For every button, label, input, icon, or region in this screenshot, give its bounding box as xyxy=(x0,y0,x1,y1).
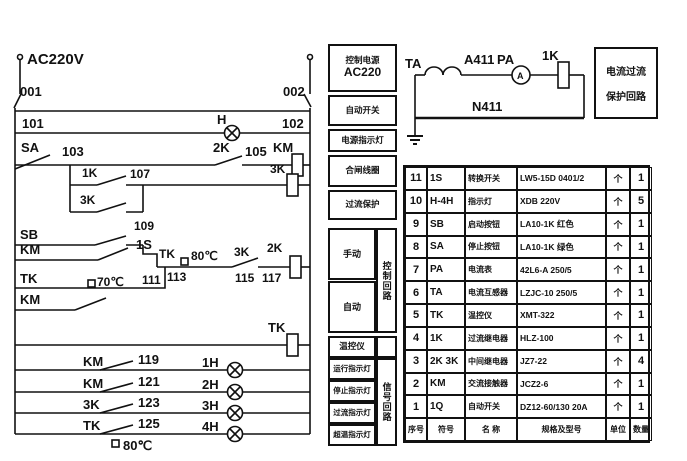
table-cell: 1 xyxy=(630,373,652,396)
protection-note-box: 电流过流 保护回路 xyxy=(595,48,657,118)
power-lamp-rung xyxy=(15,126,310,141)
ta-label: TA xyxy=(405,56,422,71)
contact-3k2-label: 3K xyxy=(234,245,250,259)
table-cell: DZ12-60/130 20A xyxy=(517,395,606,418)
table-cell: 5 xyxy=(405,304,427,327)
func-signal-loop: 信号回路 xyxy=(376,358,397,446)
k2-coil-symbol xyxy=(290,256,301,278)
temp-70-label: 70℃ xyxy=(97,275,124,289)
table-cell: 1 xyxy=(630,327,652,350)
schematic-page: AC220V 001 002 101 H 102 SA xyxy=(0,0,687,461)
k3-coil-label: 3K xyxy=(270,162,286,176)
contact-1k-label: 1K xyxy=(82,166,98,180)
table-cell: SA xyxy=(427,236,465,259)
table-cell: 自动开关 xyxy=(465,395,517,418)
wire-103: 103 xyxy=(62,144,84,159)
table-cell: 1 xyxy=(630,167,652,190)
table-header-seq: 序号 xyxy=(405,418,427,441)
wire-117: 117 xyxy=(262,271,282,285)
table-cell: 10 xyxy=(405,190,427,213)
km-coil-symbol xyxy=(292,154,303,176)
table-cell: 1 xyxy=(630,304,652,327)
table-cell: 个 xyxy=(606,395,630,418)
km-contact2-label: KM xyxy=(20,292,40,307)
table-cell: HLZ-100 xyxy=(517,327,606,350)
rung1-lamp: 1H xyxy=(202,355,219,370)
table-cell: 1 xyxy=(630,395,652,418)
table-header-model: 规格及型号 xyxy=(517,418,606,441)
table-header-name: 名 称 xyxy=(465,418,517,441)
table-cell: 4 xyxy=(405,327,427,350)
table-cell: 1Q xyxy=(427,395,465,418)
func-ot-lamp: 超温指示灯 xyxy=(328,424,376,446)
wire-109: 109 xyxy=(134,219,154,233)
table-cell: JCZ2-6 xyxy=(517,373,606,396)
table-cell: 电流互感器 xyxy=(465,281,517,304)
wire-113: 113 xyxy=(167,270,187,284)
ground-icon xyxy=(407,134,423,144)
wire-107: 107 xyxy=(130,167,150,181)
rung4-lamp: 4H xyxy=(202,419,219,434)
k2-coil-label: 2K xyxy=(267,241,283,255)
table-cell: 7 xyxy=(405,258,427,281)
wire-001: 001 xyxy=(20,84,42,99)
table-cell: LA10-1K 绿色 xyxy=(517,236,606,259)
table-cell: 1 xyxy=(630,281,652,304)
table-cell: SB xyxy=(427,213,465,236)
signal-rung-2 xyxy=(15,383,310,400)
table-cell: JZ7-22 xyxy=(517,350,606,373)
temp-80-bottom-label: 80℃ xyxy=(123,438,152,453)
note-line-1: 电流过流 xyxy=(606,65,646,78)
lamp-1h-icon xyxy=(228,363,243,378)
table-cell: LA10-1K 红色 xyxy=(517,213,606,236)
table-cell: 1 xyxy=(630,258,652,281)
supply-label: AC220V xyxy=(27,51,84,68)
table-cell: 5 xyxy=(630,190,652,213)
table-header-symbol: 符号 xyxy=(427,418,465,441)
func-run-lamp: 运行指示灯 xyxy=(328,358,376,380)
table-cell: 中间继电器 xyxy=(465,350,517,373)
k1-label: 1K xyxy=(542,48,559,63)
table-header-qty: 数量 xyxy=(630,418,652,441)
contact-3k-label: 3K xyxy=(80,193,96,207)
table-cell: 个 xyxy=(606,350,630,373)
table-cell: 转换开关 xyxy=(465,167,517,190)
function-column: 控制电源 AC220 自动开关 电源指示灯 合闸线圈 过流保护 手动 自动 温控… xyxy=(328,44,397,446)
func-breaker: 自动开关 xyxy=(328,95,397,126)
func-closing-coil: 合闸线圈 xyxy=(328,155,397,187)
lamp-3h-icon xyxy=(228,406,243,421)
table-cell: 9 xyxy=(405,213,427,236)
table-cell: 3 xyxy=(405,350,427,373)
rung4-wire: 125 xyxy=(138,416,160,431)
table-cell: LW5-15D 0401/2 xyxy=(517,167,606,190)
ct-winding-icon xyxy=(425,67,443,75)
table-cell: 2 xyxy=(405,373,427,396)
table-cell: XMT-322 xyxy=(517,304,606,327)
table-cell: 温控仪 xyxy=(465,304,517,327)
rung3-lamp: 3H xyxy=(202,398,219,413)
n411-label: N411 xyxy=(472,99,502,114)
func-oc-protect: 过流保护 xyxy=(328,190,397,220)
component-table: 11 1S 转换开关 LW5-15D 0401/2 个 1 10 H-4H 指示… xyxy=(403,165,650,443)
overcurrent-rung xyxy=(70,174,310,212)
table-cell: TK xyxy=(427,304,465,327)
table-cell: H-4H xyxy=(427,190,465,213)
sa-km-rung xyxy=(15,154,310,212)
table-cell: XDB 220V xyxy=(517,190,606,213)
table-cell: 个 xyxy=(606,281,630,304)
table-cell: LZJC-10 250/5 xyxy=(517,281,606,304)
table-header-unit: 单位 xyxy=(606,418,630,441)
km-hold-label: KM xyxy=(20,242,40,257)
ammeter-letter: A xyxy=(517,71,524,81)
func-temp-ctrl: 温控仪 xyxy=(328,336,376,358)
note-line-2: 保护回路 xyxy=(605,90,647,103)
table-cell: 个 xyxy=(606,213,630,236)
wire-105: 105 xyxy=(245,144,267,159)
func-oc-lamp: 过流指示灯 xyxy=(328,402,376,424)
table-cell: KM xyxy=(427,373,465,396)
tk-coil-rung xyxy=(15,334,310,356)
func-stop-lamp: 停止指示灯 xyxy=(328,380,376,402)
table-cell: 停止按钮 xyxy=(465,236,517,259)
table-cell: 2K 3K xyxy=(427,350,465,373)
rung3-wire: 123 xyxy=(138,395,160,410)
tk80-label: TK xyxy=(159,247,175,261)
table-cell: 个 xyxy=(606,304,630,327)
km-coil-label: KM xyxy=(273,140,293,155)
table-cell: 1K xyxy=(427,327,465,350)
table-cell: 11 xyxy=(405,167,427,190)
temp-flag-icon xyxy=(88,280,95,287)
tk-coil-symbol xyxy=(287,334,298,356)
tk-coil-label: TK xyxy=(268,320,286,335)
power-value: AC220 xyxy=(344,66,381,80)
table-cell: PA xyxy=(427,258,465,281)
tk70-label: TK xyxy=(20,271,38,286)
table-cell: 交流接触器 xyxy=(465,373,517,396)
contact-2k-label: 2K xyxy=(213,140,230,155)
rung2-wire: 121 xyxy=(138,374,160,389)
wire-111: 111 xyxy=(142,273,161,287)
table-cell: 1S xyxy=(427,167,465,190)
func-auto: 自动 xyxy=(328,281,376,333)
lamp-h-icon xyxy=(225,126,240,141)
ct-winding-icon xyxy=(443,67,461,75)
sb-label: SB xyxy=(20,227,38,242)
func-manual: 手动 xyxy=(328,228,376,280)
table-cell: 1 xyxy=(630,213,652,236)
control-ladder-diagram: AC220V 001 002 101 H 102 SA xyxy=(0,40,330,461)
wire-115: 115 xyxy=(235,271,255,285)
lamp-2h-icon xyxy=(228,385,243,400)
s1-label: 1S xyxy=(136,237,152,252)
wire-101: 101 xyxy=(22,116,44,131)
rung3-contact: 3K xyxy=(83,397,100,412)
table-cell: 4 xyxy=(630,350,652,373)
func-blank-cell xyxy=(376,336,397,358)
rung2-contact: KM xyxy=(83,376,103,391)
a411-label: A411 xyxy=(464,52,494,67)
signal-rung-4 xyxy=(15,425,310,442)
lamp-h-label: H xyxy=(217,112,226,127)
pa-label: PA xyxy=(497,52,515,67)
table-cell: 1 xyxy=(405,395,427,418)
table-cell: 1 xyxy=(630,236,652,259)
table-cell: TA xyxy=(427,281,465,304)
sa-label: SA xyxy=(21,140,40,155)
func-control-loop: 控制回路 xyxy=(376,228,397,333)
table-cell: 指示灯 xyxy=(465,190,517,213)
k1-coil-symbol xyxy=(558,62,569,88)
wire-102: 102 xyxy=(282,116,304,131)
rung1-contact: KM xyxy=(83,354,103,369)
ct-protection-circuit: TA A411 PA A 1K N411 电流过流 保护回路 xyxy=(400,30,687,165)
temp-flag-icon xyxy=(112,440,119,447)
table-cell: 个 xyxy=(606,373,630,396)
temp-80-label: 80℃ xyxy=(191,249,218,263)
table-cell: 42L6-A 250/5 xyxy=(517,258,606,281)
wire-002: 002 xyxy=(283,84,305,99)
k3-coil-symbol xyxy=(287,174,298,196)
func-power-source: 控制电源 AC220 xyxy=(328,44,397,92)
table-cell: 8 xyxy=(405,236,427,259)
table-cell: 个 xyxy=(606,327,630,350)
func-power-lamp: 电源指示灯 xyxy=(328,129,397,152)
lamp-4h-icon xyxy=(228,427,243,442)
table-cell: 6 xyxy=(405,281,427,304)
table-cell: 过流继电器 xyxy=(465,327,517,350)
temp-flag-icon xyxy=(181,258,188,265)
rung2-lamp: 2H xyxy=(202,377,219,392)
table-cell: 启动按钮 xyxy=(465,213,517,236)
table-cell: 个 xyxy=(606,258,630,281)
signal-rung-1 xyxy=(15,361,310,378)
rung1-wire: 119 xyxy=(138,352,159,367)
table-cell: 电流表 xyxy=(465,258,517,281)
rung4-contact: TK xyxy=(83,418,101,433)
table-cell: 个 xyxy=(606,167,630,190)
table-cell: 个 xyxy=(606,190,630,213)
table-cell: 个 xyxy=(606,236,630,259)
signal-rung-3 xyxy=(15,404,310,421)
